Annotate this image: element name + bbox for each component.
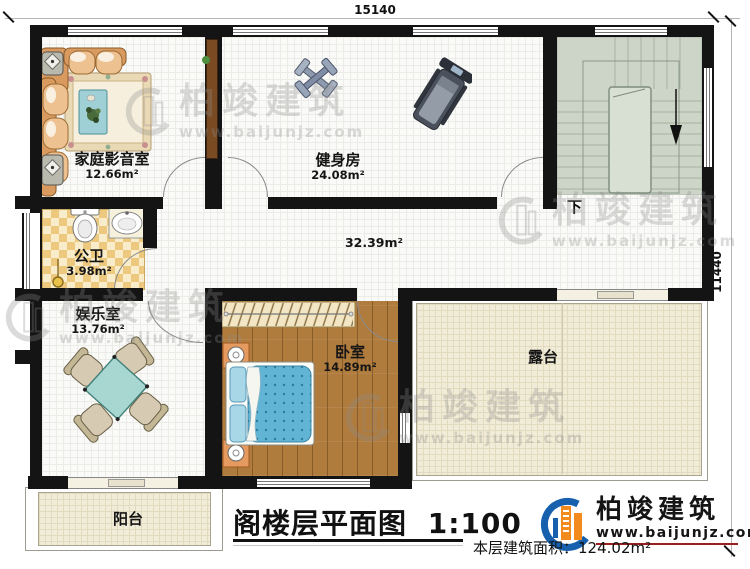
room-name: 卧室 (300, 343, 400, 361)
wall (15, 350, 42, 364)
dimension-line-top (5, 18, 740, 19)
room-label-home-theater: 家庭影音室 12.66m² (52, 150, 172, 182)
wall (222, 288, 357, 301)
room-name: 娱乐室 (48, 305, 148, 323)
room-name: 健身房 (278, 151, 398, 169)
room-area: 13.76m² (48, 323, 148, 337)
sink-icon (109, 206, 145, 238)
window (413, 25, 498, 37)
room-label-bedroom: 卧室 14.89m² (300, 343, 400, 375)
staircase (557, 37, 702, 195)
wall (42, 197, 163, 209)
plan-title: 阁楼层平面图 1:100 (233, 502, 522, 542)
plant-leaf-icon (202, 56, 210, 64)
room-label-balcony: 阳台 (88, 510, 168, 528)
treadmill-icon (410, 56, 472, 136)
room-area: 24.08m² (278, 169, 398, 183)
dimension-tick (707, 11, 719, 23)
dimension-line-right (731, 18, 732, 557)
room-name: 露台 (503, 348, 583, 366)
floor-area-label: 本层建筑面积： (473, 539, 578, 557)
room-name: 公卫 (49, 247, 129, 265)
window (68, 25, 182, 37)
terrace-floor (416, 303, 702, 476)
window (398, 413, 412, 443)
wall (28, 476, 68, 489)
speaker-icon (42, 52, 63, 75)
sliding-door (68, 477, 178, 489)
logo-brand: 柏竣建筑 (596, 496, 750, 525)
wall (398, 288, 412, 489)
room-label-bathroom: 公卫 3.98m² (49, 247, 129, 279)
wardrobe-icon (222, 302, 355, 327)
coffee-table-icon (79, 90, 107, 134)
window (595, 25, 667, 37)
wall (15, 196, 42, 209)
window (22, 213, 42, 289)
room-area: 12.66m² (52, 168, 172, 182)
stairs-down-label: 下 (567, 196, 582, 217)
wall (543, 25, 557, 209)
title-underline-thin (233, 545, 463, 546)
room-area: 32.39m² (334, 235, 414, 250)
wall (205, 288, 222, 489)
sliding-door (557, 289, 668, 301)
room-label-terrace: 露台 (503, 348, 583, 366)
room-label-entertainment: 娱乐室 13.76m² (48, 305, 148, 337)
dimension-tick (2, 11, 14, 23)
floor-area-note: 本层建筑面积：124.02m² (473, 537, 651, 558)
terrace-joint-line (562, 303, 563, 474)
wall (143, 209, 157, 248)
window (702, 68, 714, 167)
title-underline (233, 539, 463, 542)
wall (28, 288, 143, 301)
game-table-set (60, 335, 175, 445)
floor-area-value: 124.02m² (578, 539, 651, 557)
plan-scale: 1:100 (428, 507, 522, 540)
plan-title-text: 阁楼层平面图 (233, 507, 407, 540)
stairs-void (609, 87, 651, 193)
room-label-hall: 32.39m² (334, 235, 414, 250)
room-area: 3.98m² (49, 265, 129, 279)
wall (178, 476, 222, 489)
window (257, 477, 370, 489)
rug-icon (65, 73, 151, 151)
room-area: 14.89m² (300, 361, 400, 375)
dimension-top-value: 15140 (350, 3, 400, 17)
window (233, 25, 328, 37)
floorplan-canvas: 15140 11440 家庭影音室 12.66m² 健身房 24.08m² 公卫… (0, 0, 750, 569)
dumbbells-icon (290, 50, 342, 106)
wall (268, 197, 497, 209)
toilet-icon (71, 205, 99, 242)
wall (412, 288, 557, 301)
room-label-gym: 健身房 24.08m² (278, 151, 398, 183)
room-name: 阳台 (88, 510, 168, 528)
room-name: 家庭影音室 (52, 150, 172, 168)
wall (668, 288, 714, 301)
